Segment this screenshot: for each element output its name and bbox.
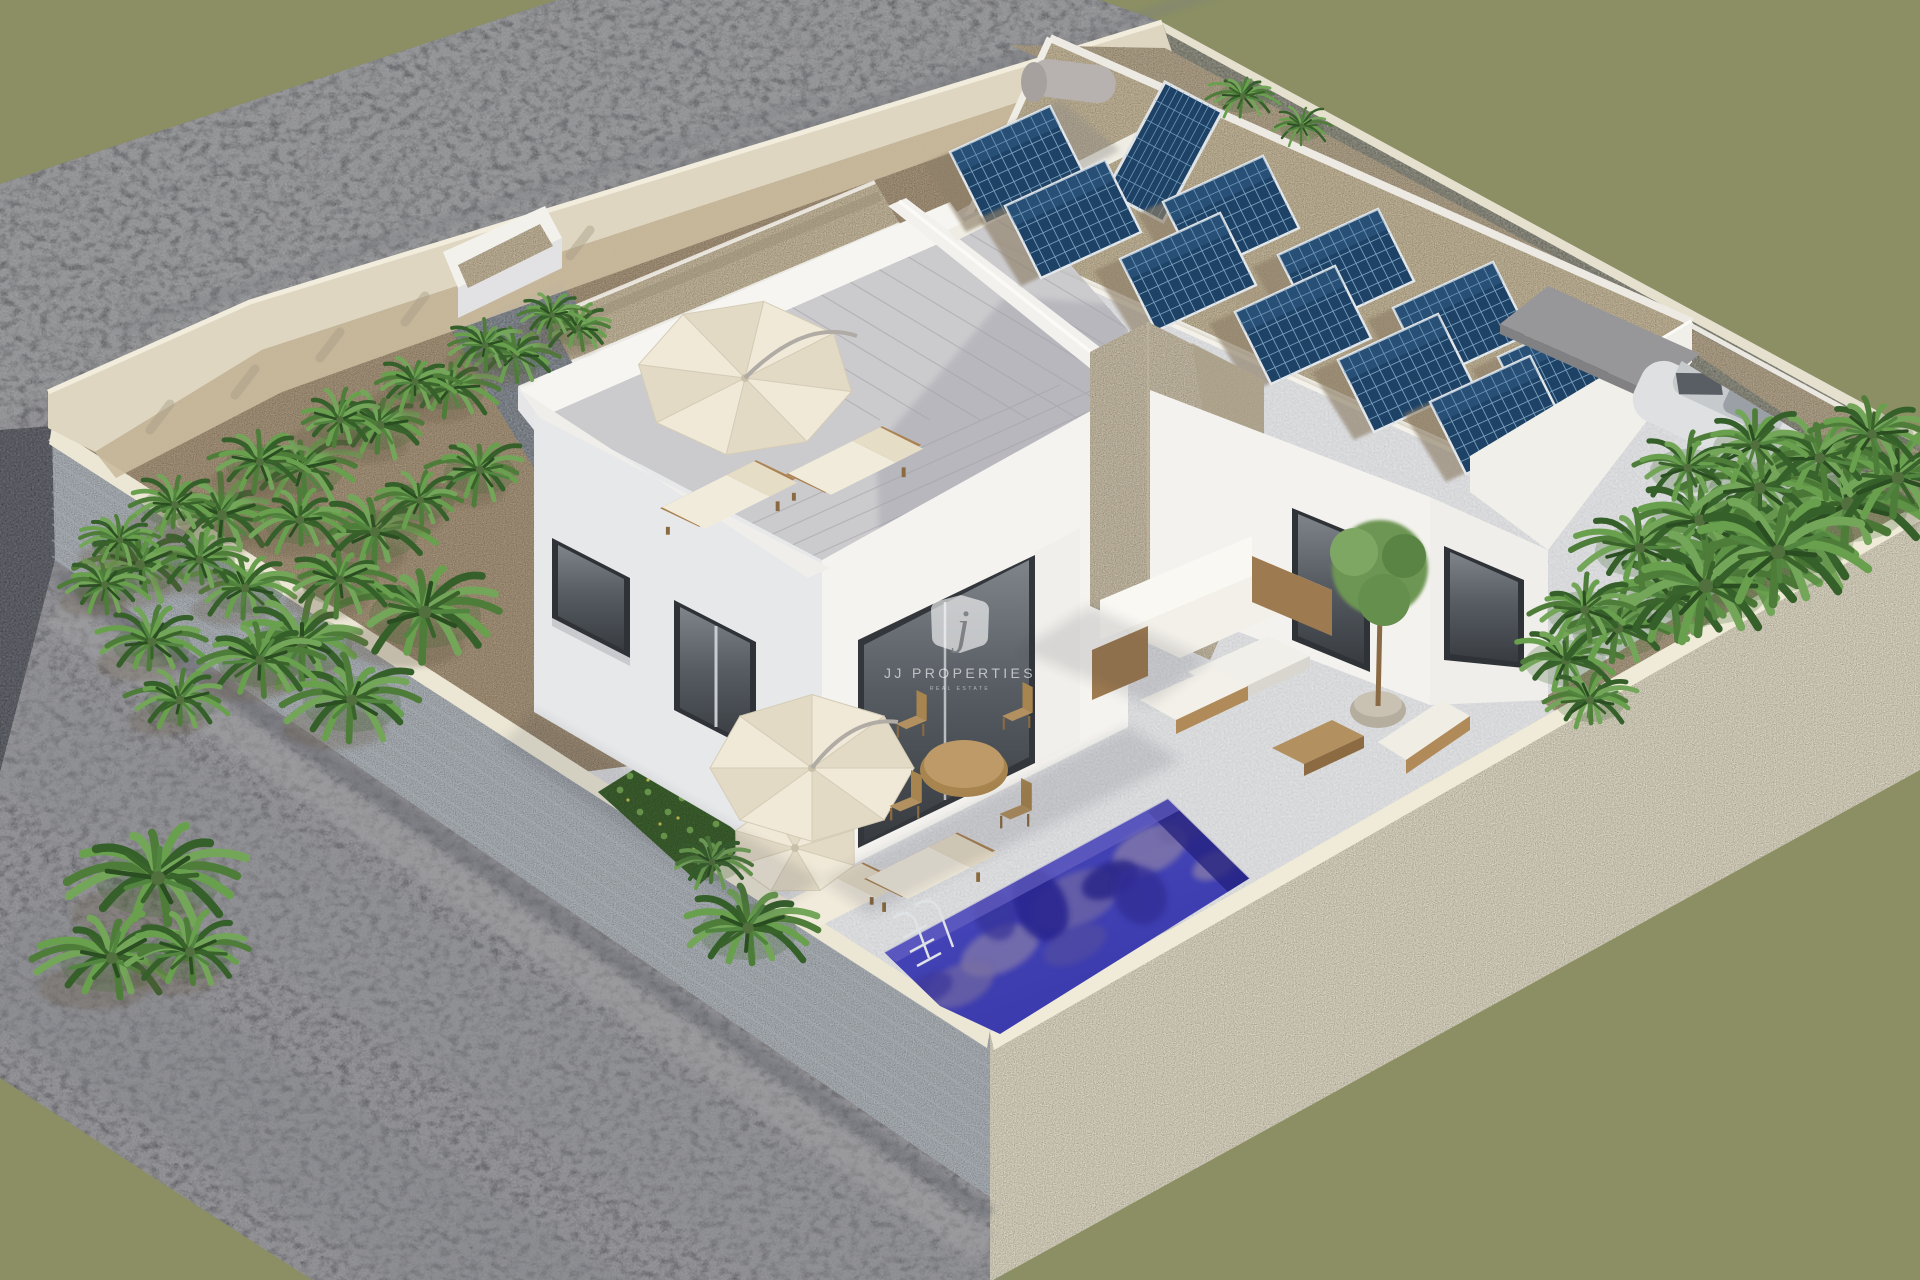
svg-text:JJ PROPERTIES: JJ PROPERTIES — [884, 665, 1036, 681]
svg-text:REAL ESTATE: REAL ESTATE — [930, 686, 991, 692]
